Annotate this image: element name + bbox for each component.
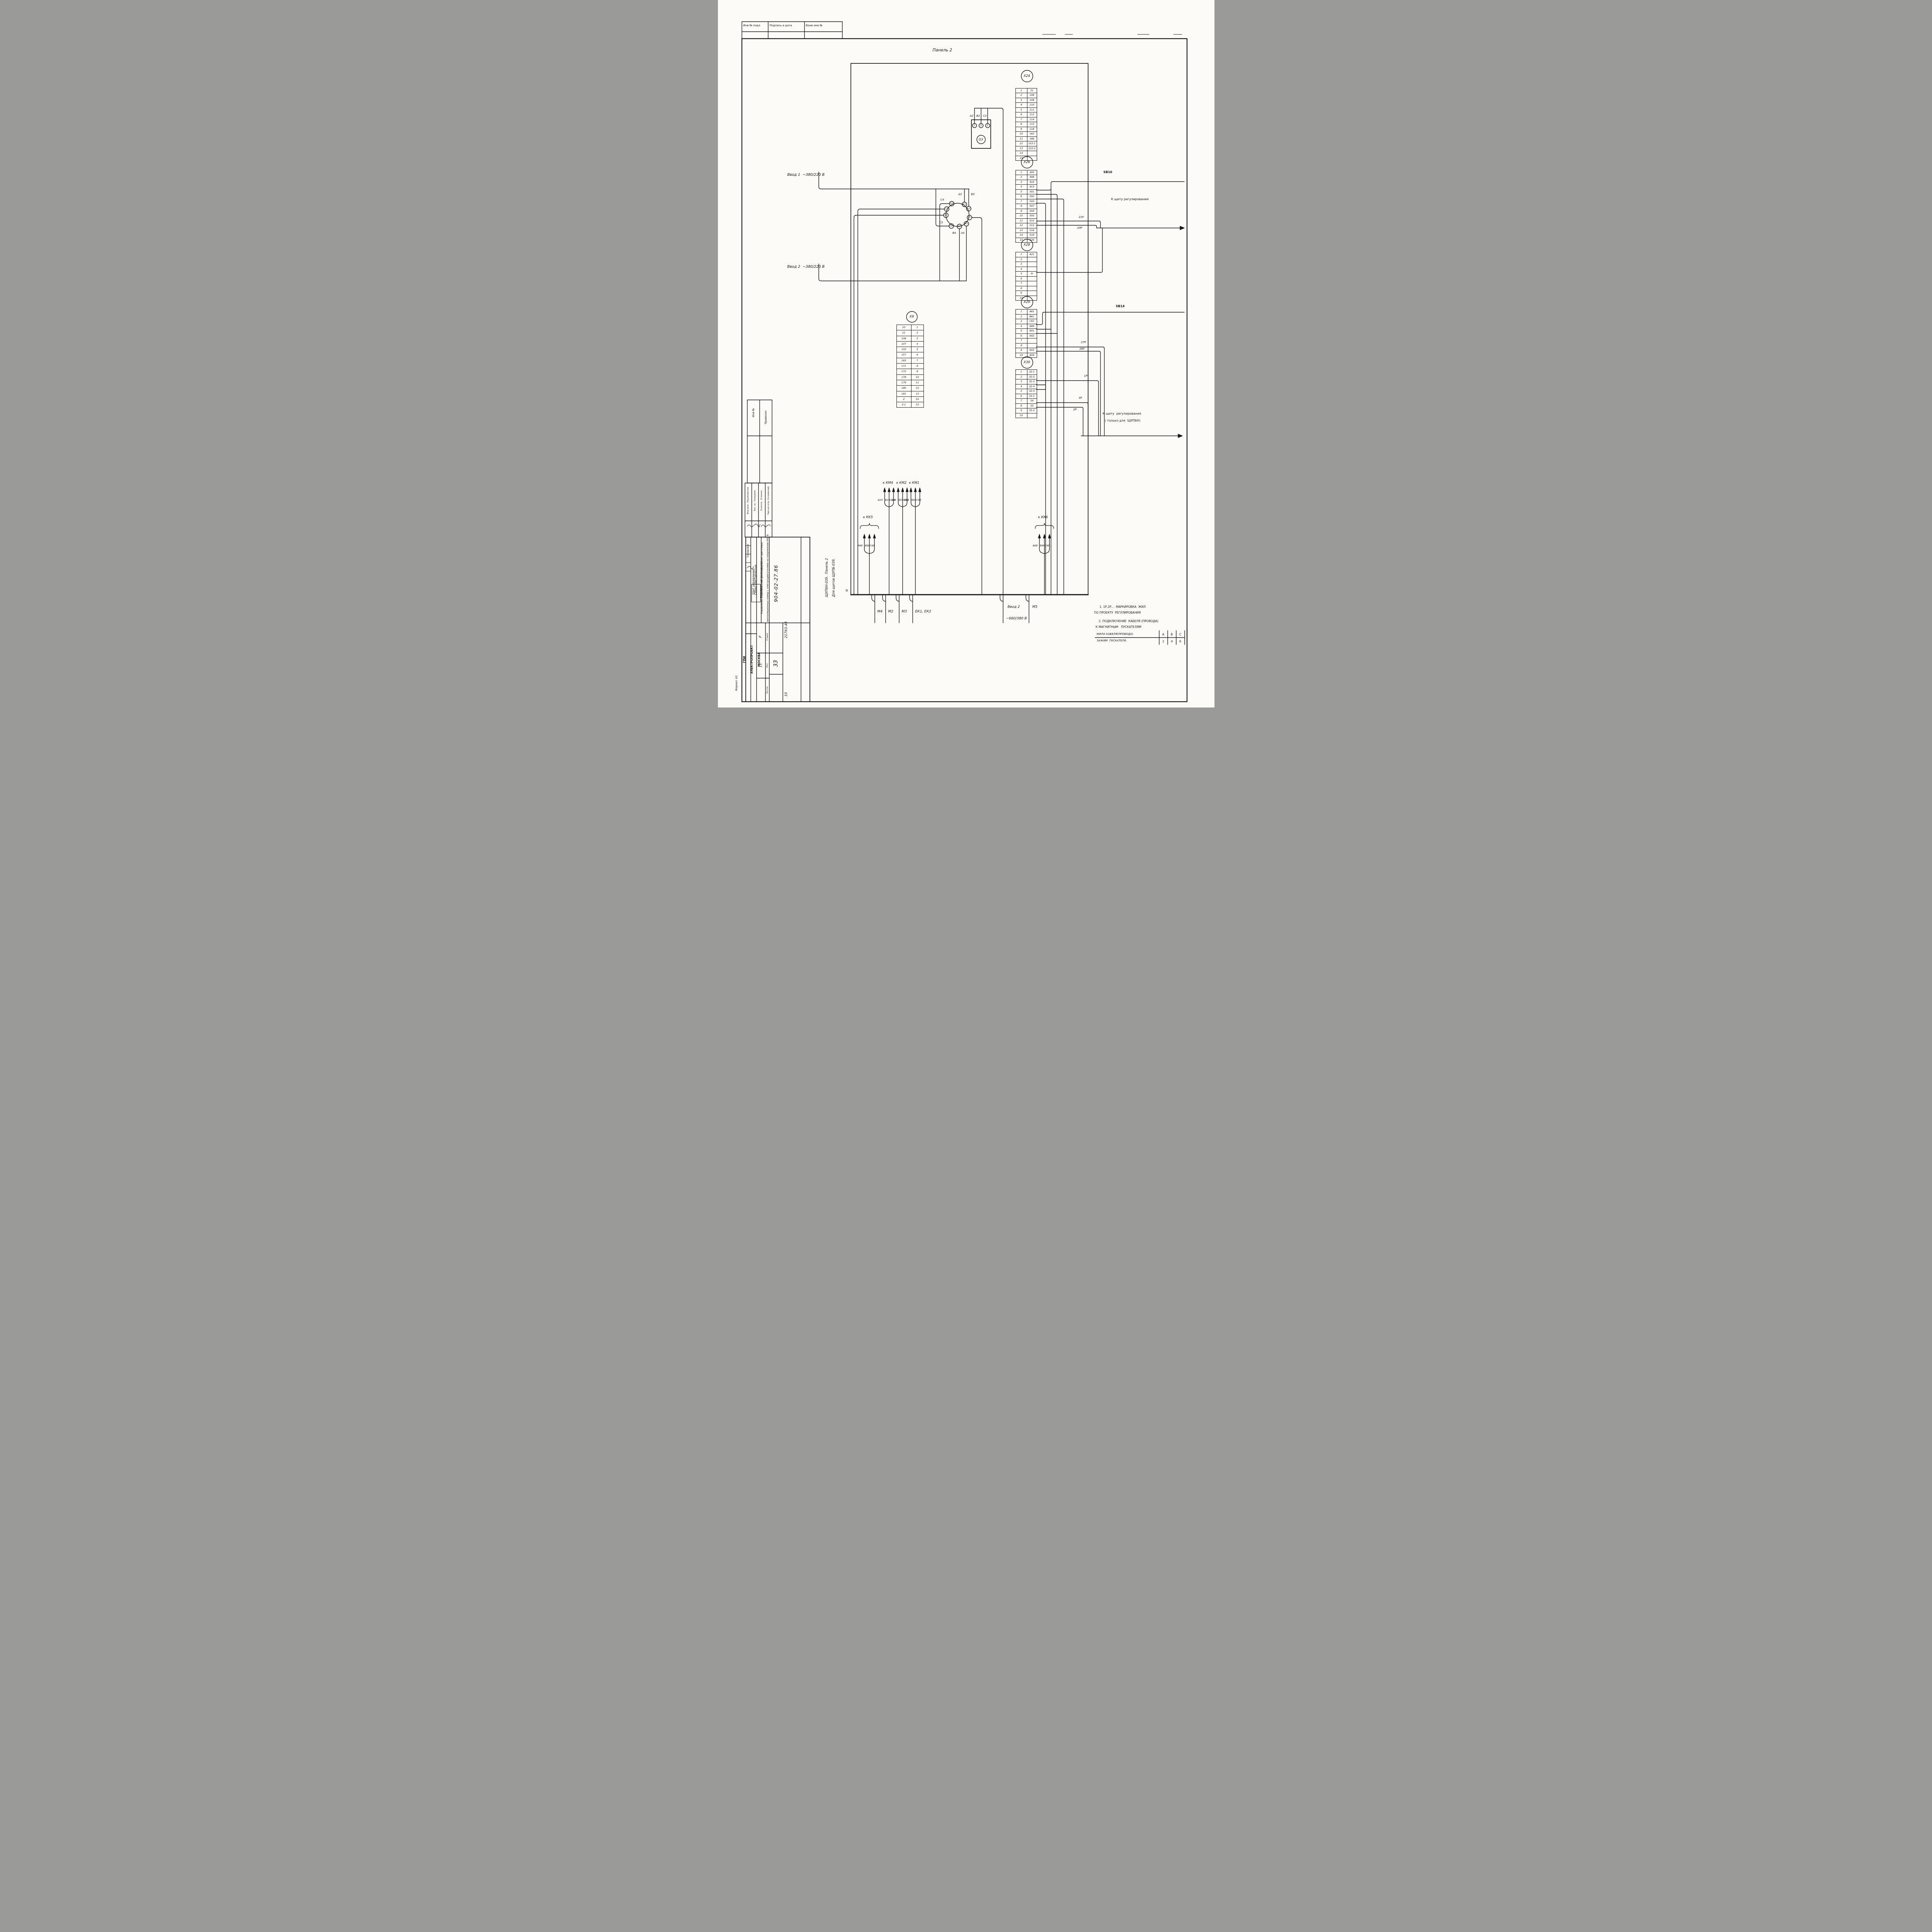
pin-cell: 115 xyxy=(1027,122,1037,126)
pin-cell: 4 xyxy=(1016,185,1027,189)
group-km4-label: к КМ4 xyxy=(883,481,893,485)
pin-cell: 15 xyxy=(1016,238,1027,242)
connector-x9-label: X9 xyxy=(910,315,914,319)
to-regulation-2a: К щиту регулирования xyxy=(1103,412,1141,415)
pin-cell xyxy=(1027,413,1037,418)
km2-wire-b: В54 xyxy=(899,498,904,502)
sw-terminal-c3: С3 xyxy=(968,216,971,219)
group-kk6-label: к КК6 xyxy=(1038,515,1048,519)
wire-c2: С2 xyxy=(983,114,986,117)
pin-cell: 10 xyxy=(1016,296,1027,301)
pin-cell: 5 xyxy=(1016,329,1027,333)
km4-wire-b: В24 xyxy=(885,498,890,502)
pin-cell: 122-1 xyxy=(1027,141,1037,146)
pin-row: 1718 xyxy=(897,363,923,369)
pin-row: 2406 xyxy=(1016,175,1037,179)
pin-row: 3С61 xyxy=(1016,319,1037,324)
sw-terminal-c1: С1 xyxy=(944,214,947,216)
note-2-line2: К МАГНИТНЫМ ПУСКАТЕЛЯМ xyxy=(1096,625,1141,629)
pin-row: 6 xyxy=(1016,276,1037,281)
pin-cell: 8 xyxy=(1016,122,1027,126)
panel-title: Панель 2 xyxy=(933,48,952,53)
stamp-podpis-data: Подпись и дата xyxy=(770,24,792,27)
role-1-title: Н.контр. xyxy=(760,501,763,511)
kk5-wire-b: В68 xyxy=(865,544,870,547)
km1-wire-a: А63 xyxy=(904,498,909,502)
wire-c4: С4 xyxy=(940,198,944,201)
pin-cell: 7 xyxy=(1016,399,1027,403)
pin-row: 734 xyxy=(1016,398,1037,403)
pin-cell: 4 xyxy=(1016,324,1027,329)
pin-row: 1555 xyxy=(897,347,923,352)
project-title-line2: вентиляционных камер с электродвигателям… xyxy=(766,534,769,622)
tag-3p: 3Р xyxy=(1079,396,1082,400)
pin-cell: 179 xyxy=(897,380,912,385)
pin-cell: 410 xyxy=(1027,180,1037,184)
pin-row: 2 xyxy=(1016,257,1037,262)
pin-cell: 5 xyxy=(912,347,923,352)
pin-cell xyxy=(1027,262,1037,267)
role-2-title: Рук. гр. xyxy=(754,503,756,511)
pin-row: 13122-2 xyxy=(1016,146,1037,151)
pin-cell: 106 xyxy=(897,336,912,341)
side-note-line1: Для щитов ЩУПБ-039, xyxy=(832,558,836,597)
role-0-name: Островский xyxy=(767,486,770,500)
pin-cell: 32-2 xyxy=(1027,375,1037,379)
kk5-wire-a: А68 xyxy=(858,544,863,547)
role-zam-nach: Зам.нач.отд Островский xyxy=(765,486,772,517)
pin-cell: 14 xyxy=(1016,233,1027,237)
connector-x9-table: 1012121063107415551576165717181729178101… xyxy=(896,325,924,408)
wire-a3: А3 xyxy=(958,193,962,196)
pin-cell: 2 xyxy=(897,397,912,402)
pin-cell xyxy=(1027,257,1037,262)
pin-row: 835 xyxy=(1016,403,1037,408)
pu-table-r1-c: С xyxy=(1179,633,1181,636)
pin-row: 3-115 xyxy=(897,402,923,407)
format-label: Формат А2 xyxy=(735,675,738,691)
schematic-linework xyxy=(718,0,1214,707)
pin-row: 4 xyxy=(1016,267,1037,272)
pin-row: 214 xyxy=(897,396,923,402)
pin-row: 4110 xyxy=(1016,102,1037,107)
pin-row: 1657 xyxy=(897,358,923,363)
wire-b4: В4 xyxy=(952,231,956,235)
pin-row: 9504 xyxy=(1016,209,1037,213)
pin-cell: 3 xyxy=(912,336,923,341)
list-value: 15 xyxy=(759,663,762,667)
connector-x26-table: 1405240634104413550165027503850795041050… xyxy=(1015,170,1037,243)
heater-ek-label: ЕК1, ЕК2 xyxy=(915,610,931,614)
pin-row: 2108 xyxy=(1016,93,1037,97)
pin-row: 212 xyxy=(897,330,923,335)
pin-row: 11510 xyxy=(1016,218,1037,223)
pin-cell xyxy=(1027,286,1037,291)
pin-row: 9 xyxy=(1016,291,1037,296)
pin-row: 2В61 xyxy=(1016,314,1037,319)
pin-cell: 32-5 xyxy=(1027,389,1037,394)
pin-row: 101 xyxy=(897,325,923,330)
pin-cell: 6 xyxy=(1016,277,1027,281)
pin-cell: 3 xyxy=(1016,180,1027,184)
connector-x28-label: X28 xyxy=(1024,243,1030,247)
sw-terminal-1l2: 1L2 xyxy=(967,207,970,210)
pin-cell: 5 xyxy=(1016,389,1027,394)
pin-cell: 7 xyxy=(1016,338,1027,343)
sw-terminal-2l2: 2L2 xyxy=(957,225,961,228)
connector-x24-label: X24 xyxy=(1024,74,1030,78)
pin-row: 10505 xyxy=(1016,213,1037,218)
pu-table-r1-label: ЖИЛА КАБЕЛЯ(ПРОВОДА) xyxy=(1097,633,1133,636)
pin-cell: 3 xyxy=(1016,98,1027,102)
list-label: Лист xyxy=(766,663,769,668)
side-note-line2: ЩУП6Н-039. Панель 2 xyxy=(825,558,829,597)
pin-cell: 1 xyxy=(1016,88,1027,93)
pin-row: 332-3 xyxy=(1016,379,1037,384)
pin-cell: 10 xyxy=(1016,214,1027,218)
pin-cell: 3 xyxy=(1016,379,1027,384)
sb14-label: SB14 xyxy=(1116,304,1125,308)
tag-1p: 1Р xyxy=(1084,374,1088,378)
pin-cell: 33-1 xyxy=(1027,394,1037,399)
sb10-label: SB10 xyxy=(1104,170,1112,174)
pin-cell: 181 xyxy=(897,391,912,396)
tag-26p: 26Р xyxy=(1080,347,1085,350)
drawing-title-line2: Схема электрическая xyxy=(754,565,757,595)
pin-cell: 7 xyxy=(1016,199,1027,204)
pin-cell: 11 xyxy=(1016,219,1027,223)
pin-row: 7 xyxy=(1016,338,1037,343)
pin-row: 9118 xyxy=(1016,127,1037,131)
pin-row: 4413 xyxy=(1016,184,1037,189)
motor-m2-label: М2 xyxy=(888,610,894,614)
to-regulation-2b: ( только для ЩУП6Н) xyxy=(1105,419,1141,422)
pin-cell: 1 xyxy=(1016,170,1027,175)
pin-cell: 6 xyxy=(1016,334,1027,338)
pin-row: 1А61 xyxy=(1016,310,1037,314)
neutral-mark: N xyxy=(845,589,849,592)
pin-cell: 3-1 xyxy=(897,402,912,407)
project-title-line1: Управление и силовое электрооборудование… xyxy=(760,542,763,614)
pin-cell: 6 xyxy=(912,352,923,357)
pin-cell xyxy=(1027,151,1037,155)
to-regulation-1: К щиту регулирования xyxy=(1111,197,1149,201)
pin-cell: 32-3 xyxy=(1027,379,1037,384)
pin-row: 5501 xyxy=(1016,189,1037,194)
connector-x29-label: X29 xyxy=(1024,300,1030,304)
pin-cell: 11 xyxy=(912,380,923,385)
pin-cell: 2 xyxy=(1016,175,1027,179)
pin-cell: 9 xyxy=(1016,209,1027,213)
q3-terminal-3: 3 xyxy=(980,124,982,127)
stamp-inv-podl: Инв № подл xyxy=(743,24,760,27)
pin-cell: 15 xyxy=(912,402,923,407)
pin-cell: 502 xyxy=(1027,194,1037,199)
pin-cell: 9 xyxy=(1016,127,1027,131)
pin-cell: N xyxy=(1027,272,1037,276)
pin-row: 1405 xyxy=(1016,170,1037,175)
pin-row: 15520 xyxy=(1016,238,1037,242)
pin-row: 15 xyxy=(1016,156,1037,160)
pin-cell: 10 xyxy=(1016,413,1027,418)
pin-cell: 163 xyxy=(1027,132,1037,136)
pin-cell: 5 xyxy=(1016,108,1027,112)
pin-cell: 32-1 xyxy=(1027,370,1037,374)
tag-27p: 27Р xyxy=(1081,341,1086,344)
note-1-line2: ПО ПРОЕКТУ РЕГУЛИРОВАНИЯ xyxy=(1094,611,1141,614)
pin-row: 7503 xyxy=(1016,199,1037,204)
pin-cell: 114 xyxy=(1027,117,1037,122)
pin-cell: 7 xyxy=(912,358,923,363)
pin-cell: 13 xyxy=(912,391,923,396)
pin-cell: 1 xyxy=(1016,310,1027,314)
pin-row: 232-2 xyxy=(1016,374,1037,379)
stage-label: Стадия xyxy=(766,633,769,640)
pin-cell: 507 xyxy=(1027,204,1037,208)
kk6-wire-a: А69 xyxy=(1033,544,1038,547)
drawing-sheet: Инв № подл Подпись и дата Взам инв № Пан… xyxy=(718,0,1214,707)
pu-table-r2-6: 6 xyxy=(1179,640,1181,643)
pin-cell: 602 xyxy=(1027,334,1037,338)
vvod2-bottom-label: Ввод 2 xyxy=(1008,605,1020,609)
pin-row: 432-4 xyxy=(1016,384,1037,389)
pin-row: 1074 xyxy=(897,341,923,347)
sw-terminal-c2: С2 xyxy=(945,208,948,210)
connector-x30-table: 132-1232-2332-3432-4532-5633-1734835935-… xyxy=(1015,369,1037,418)
pin-row: 6602 xyxy=(1016,333,1037,338)
pin-cell: 10 xyxy=(897,325,912,330)
pin-cell: 10 xyxy=(1016,132,1027,136)
pin-row: 13516 xyxy=(1016,228,1037,233)
doc-number: 904-02-27.86 xyxy=(773,565,779,602)
pin-cell xyxy=(1027,344,1037,348)
pin-cell: 516 xyxy=(1027,228,1037,233)
pin-cell xyxy=(1027,277,1037,281)
wire-a2: А2 xyxy=(970,114,973,117)
pin-cell: С61 xyxy=(1027,319,1037,324)
project-title: Управление и силовое электрооборудование… xyxy=(758,534,772,625)
pin-cell: 15 xyxy=(1016,156,1027,160)
vvod2-label: Ввод 2 ~380/220 В xyxy=(787,265,825,269)
pin-cell: 510 xyxy=(1027,219,1037,223)
pin-cell: 110 xyxy=(1027,103,1037,107)
pin-cell: 405 xyxy=(1027,170,1037,175)
role-rukgr: Рук. гр. Гинодман xyxy=(752,490,759,514)
pin-cell: 1 xyxy=(912,325,923,330)
inv-col-label: Инв № xyxy=(752,408,755,417)
pin-row: 5601 xyxy=(1016,328,1037,333)
connector-x24-table: 1312108310941105111611271148115911810163… xyxy=(1015,88,1037,161)
pin-cell: 14 xyxy=(1016,151,1027,155)
pin-row: 17810 xyxy=(897,374,923,380)
pin-cell: 157 xyxy=(897,352,912,357)
pin-row: 935-2 xyxy=(1016,408,1037,413)
pin-cell: 4 xyxy=(1016,103,1027,107)
pin-cell: 8 xyxy=(1016,286,1027,291)
role-nkontr: Н.контр. Огиенко xyxy=(758,490,765,514)
pin-cell: 413 xyxy=(1027,185,1037,189)
pu-table-r2-2: 2 xyxy=(1162,640,1164,643)
pin-cell: 111 xyxy=(1027,108,1037,112)
sw-terminal-1l3: 1L3 xyxy=(949,225,953,227)
pin-row: 1А21 xyxy=(1016,252,1037,257)
pin-cell: 3 xyxy=(1016,262,1027,267)
pin-cell: 12 xyxy=(912,386,923,391)
pin-cell: 122-2 xyxy=(1027,146,1037,151)
pin-cell: 10 xyxy=(1016,353,1027,358)
pin-cell: 8 xyxy=(912,364,923,369)
pin-row: 532-5 xyxy=(1016,389,1037,394)
pu-table-r2-label: ЗАЖИМ ПУСКАТЕЛЯ. xyxy=(1097,639,1127,642)
km1-wire-c: С63 xyxy=(917,498,922,502)
pin-cell: 520 xyxy=(1027,238,1037,242)
wire-a4: А4 xyxy=(961,231,964,235)
pin-cell: 21 xyxy=(897,330,912,335)
pin-cell: 513 xyxy=(1027,223,1037,228)
pin-row: 12122-1 xyxy=(1016,141,1037,146)
pin-cell: 9 xyxy=(1016,348,1027,353)
pin-row: 5111 xyxy=(1016,107,1037,112)
pin-cell: А66 xyxy=(1027,324,1037,329)
listov-label: Листов xyxy=(766,687,769,694)
pin-row: 14 xyxy=(1016,151,1037,155)
pin-cell: 35 xyxy=(1027,404,1037,408)
pin-row: 8 xyxy=(1016,286,1037,291)
pin-row: 633-1 xyxy=(1016,394,1037,399)
km4-wire-a: А24 xyxy=(878,498,883,502)
pu-table-r1-b: В xyxy=(1171,633,1173,636)
pin-cell: 13 xyxy=(1016,146,1027,151)
pin-cell: 604 xyxy=(1027,353,1037,358)
q3-terminal-5: 5 xyxy=(987,124,988,127)
pin-cell: 2 xyxy=(1016,257,1027,262)
pin-cell: 4 xyxy=(1016,267,1027,272)
copied-by-label: Копировал xyxy=(747,544,749,557)
pin-row: 14518 xyxy=(1016,233,1037,237)
pin-cell: 112 xyxy=(1027,112,1037,117)
pin-cell: 178 xyxy=(897,375,912,380)
pin-cell: 13 xyxy=(1016,228,1027,233)
pin-cell: 501 xyxy=(1027,190,1037,194)
pu-table-r2-4: 4 xyxy=(1171,640,1173,643)
pin-cell: 165 xyxy=(897,358,912,363)
stage-value: Р xyxy=(759,636,763,638)
pin-row: 12513 xyxy=(1016,223,1037,228)
tag-21p: 21Р xyxy=(1079,216,1084,219)
stamp-vzam-inv: Взам инв № xyxy=(806,24,823,27)
sw-terminal-2l1: 2L1 xyxy=(964,223,968,225)
pin-cell: 35-2 xyxy=(1027,408,1037,413)
pin-cell: 8 xyxy=(1016,204,1027,208)
pin-cell: 108 xyxy=(1027,93,1037,97)
pin-cell: 14 xyxy=(912,397,923,402)
pin-cell: 10 xyxy=(912,375,923,380)
sw-terminal-2l3: 2L3 xyxy=(950,202,953,205)
connector-x28-table: 1А212345N678910 xyxy=(1015,252,1037,301)
pin-row: 17911 xyxy=(897,380,923,385)
tag-20p: 20Р xyxy=(1077,226,1082,230)
pin-cell: 180 xyxy=(897,386,912,391)
role-2-name: Гинодман xyxy=(754,490,756,502)
pin-cell: 2 xyxy=(912,330,923,335)
pin-row: 3 xyxy=(1016,262,1037,267)
pin-cell: 518 xyxy=(1027,233,1037,237)
pin-row: 9603 xyxy=(1016,348,1037,353)
pin-cell xyxy=(1027,267,1037,272)
connector-x29-table: 1А612В613С614А665601660278960310604 xyxy=(1015,309,1037,358)
pin-cell: 9 xyxy=(912,369,923,374)
motor-m4-label: М4 xyxy=(878,610,883,614)
pin-row: 18012 xyxy=(897,385,923,391)
kk5-wire-c: С68 xyxy=(870,544,875,547)
privyazan-label: Привязан xyxy=(764,410,767,424)
org-line2: ЭЛЕКТРОПРОЕКТ xyxy=(750,645,753,674)
pin-cell: 172 xyxy=(897,369,912,374)
role-0-title: Зам.нач.отд xyxy=(767,501,770,515)
pin-cell: 6 xyxy=(1016,394,1027,399)
km2-wire-a: А54 xyxy=(891,498,896,502)
note-2-line1: 2. ПОДКЛЮЧЕНИЕ КАБЕЛЯ (ПРОВОДА) xyxy=(1099,619,1158,623)
q3-terminal-1: 1 xyxy=(974,124,975,127)
pin-row: 5N xyxy=(1016,271,1037,276)
pin-cell: 503 xyxy=(1027,199,1037,204)
connector-x26-label: X26 xyxy=(1024,160,1030,164)
pin-row: 10163 xyxy=(1016,131,1037,136)
breaker-q3-label: Q3 xyxy=(979,138,983,141)
pin-row: 7114 xyxy=(1016,117,1037,122)
pin-cell: 166 xyxy=(1027,137,1037,141)
wire-c3: С3 xyxy=(939,221,943,224)
pin-cell: А21 xyxy=(1027,252,1037,257)
pin-row: 131 xyxy=(1016,88,1037,93)
pin-cell: 5 xyxy=(1016,272,1027,276)
pin-row: 10 xyxy=(1016,413,1037,418)
tag-2p: 2Р xyxy=(1073,408,1077,411)
pin-cell: 4 xyxy=(912,342,923,347)
pin-cell: 171 xyxy=(897,364,912,369)
note-1-line1: 1. 1Р,2Р... МАРКИРОВКА ЖИЛ xyxy=(1100,605,1146,609)
role-1-name: Огиенко xyxy=(760,490,763,500)
pin-cell xyxy=(1027,296,1037,301)
sw-terminal-1l1: 1L1 xyxy=(963,203,966,206)
group-km1-label: к КМ1 xyxy=(909,481,920,485)
pin-cell: 601 xyxy=(1027,329,1037,333)
pin-cell: 504 xyxy=(1027,209,1037,213)
pin-cell: 2 xyxy=(1016,375,1027,379)
pin-row: 7 xyxy=(1016,281,1037,286)
pin-cell: 8 xyxy=(1016,404,1027,408)
pin-cell: 1 xyxy=(1016,252,1027,257)
motor-m3-label: М3 xyxy=(902,610,907,614)
pin-cell: 505 xyxy=(1027,214,1037,218)
pin-cell: 2 xyxy=(1016,93,1027,97)
km1-wire-b: В63 xyxy=(912,498,917,502)
pin-row: 8507 xyxy=(1016,204,1037,208)
pin-row: 3109 xyxy=(1016,98,1037,102)
pin-cell: В61 xyxy=(1027,315,1037,319)
role-3-name: Кишиневская xyxy=(747,487,749,502)
pin-cell: 34 xyxy=(1027,399,1037,403)
pin-row: 3410 xyxy=(1016,180,1037,184)
pin-cell xyxy=(1027,291,1037,296)
kk6-wire-c: С69 xyxy=(1045,544,1050,547)
sheet-number-big: 33 xyxy=(773,660,779,667)
motor-m5-label: М5 xyxy=(1032,605,1038,609)
pin-cell: 3 xyxy=(1016,319,1027,324)
pin-row: 8 xyxy=(1016,343,1037,348)
pin-row: 132-1 xyxy=(1016,370,1037,374)
pin-row: 4А66 xyxy=(1016,324,1037,329)
